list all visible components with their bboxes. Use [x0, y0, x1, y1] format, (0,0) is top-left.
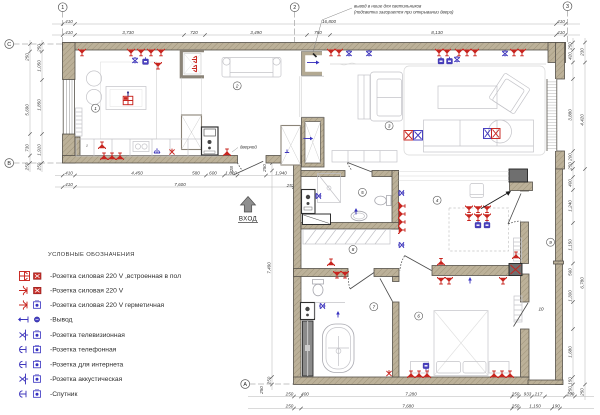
- svg-text:1,850: 1,850: [37, 99, 42, 111]
- svg-text:3: 3: [566, 4, 569, 10]
- svg-text:1: 1: [61, 5, 64, 11]
- svg-text:250: 250: [37, 44, 42, 53]
- svg-text:217: 217: [534, 391, 543, 396]
- svg-text:6,780: 6,780: [580, 277, 585, 289]
- svg-text:-Вывод: -Вывод: [50, 316, 73, 323]
- svg-text:410: 410: [65, 19, 73, 24]
- svg-text:-Розетка аккустическая: -Розетка аккустическая: [50, 376, 123, 383]
- svg-text:-Розетка силовая 220 V ,встрое: -Розетка силовая 220 V ,встроенная в пол: [50, 273, 181, 280]
- svg-text:1,300: 1,300: [568, 290, 573, 302]
- svg-text:600: 600: [209, 170, 217, 175]
- svg-text:7,600: 7,600: [174, 182, 186, 187]
- svg-text:200: 200: [568, 153, 573, 162]
- svg-text:7,680: 7,680: [402, 403, 414, 408]
- svg-text:3: 3: [388, 123, 391, 128]
- svg-text:410: 410: [65, 182, 73, 187]
- svg-text:г: г: [86, 143, 88, 148]
- svg-text:250: 250: [568, 42, 573, 51]
- svg-text:410: 410: [65, 30, 73, 35]
- svg-text:410: 410: [65, 170, 73, 175]
- svg-text:3,730: 3,730: [122, 30, 134, 35]
- svg-text:150: 150: [568, 377, 573, 385]
- svg-text:730: 730: [25, 144, 30, 152]
- svg-text:6: 6: [417, 314, 420, 319]
- svg-text:250: 250: [25, 162, 30, 171]
- svg-text:400: 400: [301, 391, 309, 396]
- svg-text:7,280: 7,280: [405, 391, 417, 396]
- svg-text:190: 190: [567, 391, 575, 396]
- svg-text:УСЛОВНЫЕ ОБОЗНАЧЕНИЯ: УСЛОВНЫЕ ОБОЗНАЧЕНИЯ: [48, 252, 135, 258]
- svg-text:328: 328: [229, 166, 234, 174]
- svg-text:7: 7: [373, 304, 376, 309]
- svg-text:B: B: [7, 161, 11, 167]
- svg-text:1,240: 1,240: [568, 200, 573, 212]
- svg-text:1,150: 1,150: [529, 403, 541, 408]
- svg-text:230: 230: [580, 48, 585, 57]
- svg-text:1,910: 1,910: [37, 144, 42, 156]
- svg-text:250: 250: [37, 162, 42, 171]
- svg-text:250: 250: [568, 162, 573, 171]
- svg-text:A: A: [243, 382, 247, 388]
- svg-text:580: 580: [192, 170, 200, 175]
- svg-text:1,050: 1,050: [37, 60, 42, 72]
- svg-text:250: 250: [285, 391, 294, 396]
- svg-text:-Розетка телевизионная: -Розетка телевизионная: [50, 332, 125, 339]
- svg-text:-Спутник: -Спутник: [50, 391, 78, 398]
- svg-text:8,130: 8,130: [431, 30, 443, 35]
- svg-text:ВХОД: ВХОД: [239, 216, 258, 223]
- svg-text:2: 2: [293, 5, 296, 11]
- svg-text:250: 250: [25, 53, 30, 62]
- svg-text:250: 250: [267, 376, 272, 385]
- svg-text:190: 190: [552, 403, 560, 408]
- svg-text:3,490: 3,490: [250, 30, 262, 35]
- svg-text:1,150: 1,150: [568, 239, 573, 251]
- svg-text:400: 400: [568, 179, 573, 187]
- svg-text:4,450: 4,450: [131, 170, 143, 175]
- svg-text:250: 250: [262, 164, 267, 173]
- svg-text:16,800: 16,800: [322, 19, 336, 24]
- svg-text:C: C: [7, 42, 11, 48]
- svg-text:250: 250: [285, 403, 294, 408]
- svg-text:4,420: 4,420: [580, 114, 585, 126]
- svg-text:4: 4: [436, 198, 439, 203]
- svg-text:(подсветка загорается при откр: (подсветка загорается при открывании две…: [354, 10, 454, 15]
- svg-text:10: 10: [538, 307, 544, 312]
- svg-text:250: 250: [511, 391, 520, 396]
- svg-text:5,690: 5,690: [25, 104, 30, 116]
- svg-text:1,940: 1,940: [275, 170, 287, 175]
- svg-text:-Розетка телефонная: -Розетка телефонная: [50, 346, 117, 353]
- svg-text:1,680: 1,680: [568, 346, 573, 358]
- svg-text:933: 933: [524, 391, 532, 396]
- svg-text:2: 2: [235, 83, 239, 88]
- svg-text:420: 420: [568, 52, 573, 60]
- svg-text:7,490: 7,490: [267, 262, 272, 274]
- svg-text:1: 1: [94, 106, 97, 111]
- svg-text:250: 250: [580, 388, 585, 397]
- svg-text:-Розетка силовая 220 V гермети: -Розетка силовая 220 V герметичная: [50, 302, 165, 309]
- svg-text:-Розетка силовая 220 V: -Розетка силовая 220 V: [50, 287, 124, 294]
- svg-text:720: 720: [190, 30, 198, 35]
- svg-text:9: 9: [549, 240, 552, 245]
- svg-text:8: 8: [352, 247, 355, 252]
- svg-text:вывод в нише для светильников: вывод в нише для светильников: [354, 4, 422, 9]
- svg-text:250: 250: [511, 403, 520, 408]
- svg-text:-Розетка для интернета: -Розетка для интернета: [50, 361, 124, 368]
- svg-text:410: 410: [557, 30, 565, 35]
- svg-text:дверной: дверной: [240, 145, 257, 150]
- svg-text:5: 5: [361, 190, 364, 195]
- svg-text:560: 560: [568, 268, 573, 276]
- svg-text:3,880: 3,880: [568, 109, 573, 121]
- svg-text:410: 410: [557, 19, 565, 24]
- svg-text:250: 250: [259, 386, 264, 395]
